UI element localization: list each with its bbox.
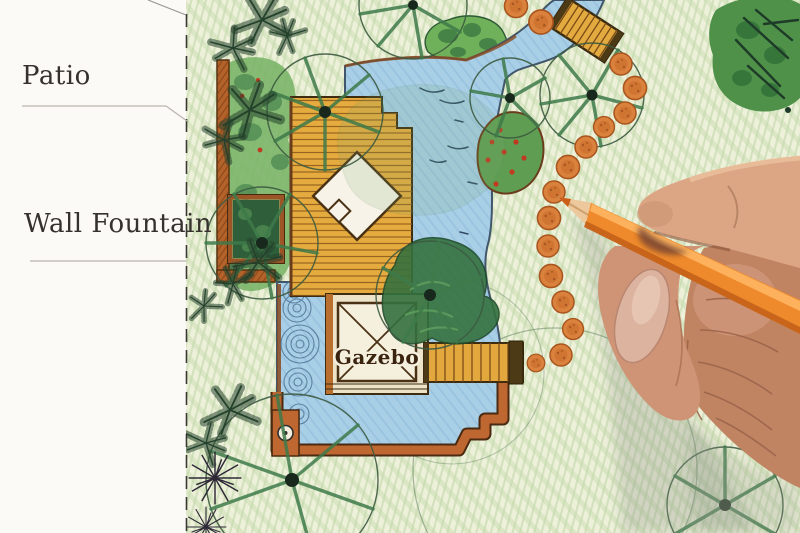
garden-plan-photo: Gazebo <box>0 0 800 533</box>
boardwalk <box>424 341 523 384</box>
wall-fountain-label: Wall Fountain <box>24 209 212 239</box>
plan-margin: Patio Wall Fountain <box>0 0 212 533</box>
patio-label: Patio <box>22 61 91 91</box>
gazebo-label: Gazebo <box>335 345 419 369</box>
plan-drawing: Gazebo <box>0 0 800 533</box>
